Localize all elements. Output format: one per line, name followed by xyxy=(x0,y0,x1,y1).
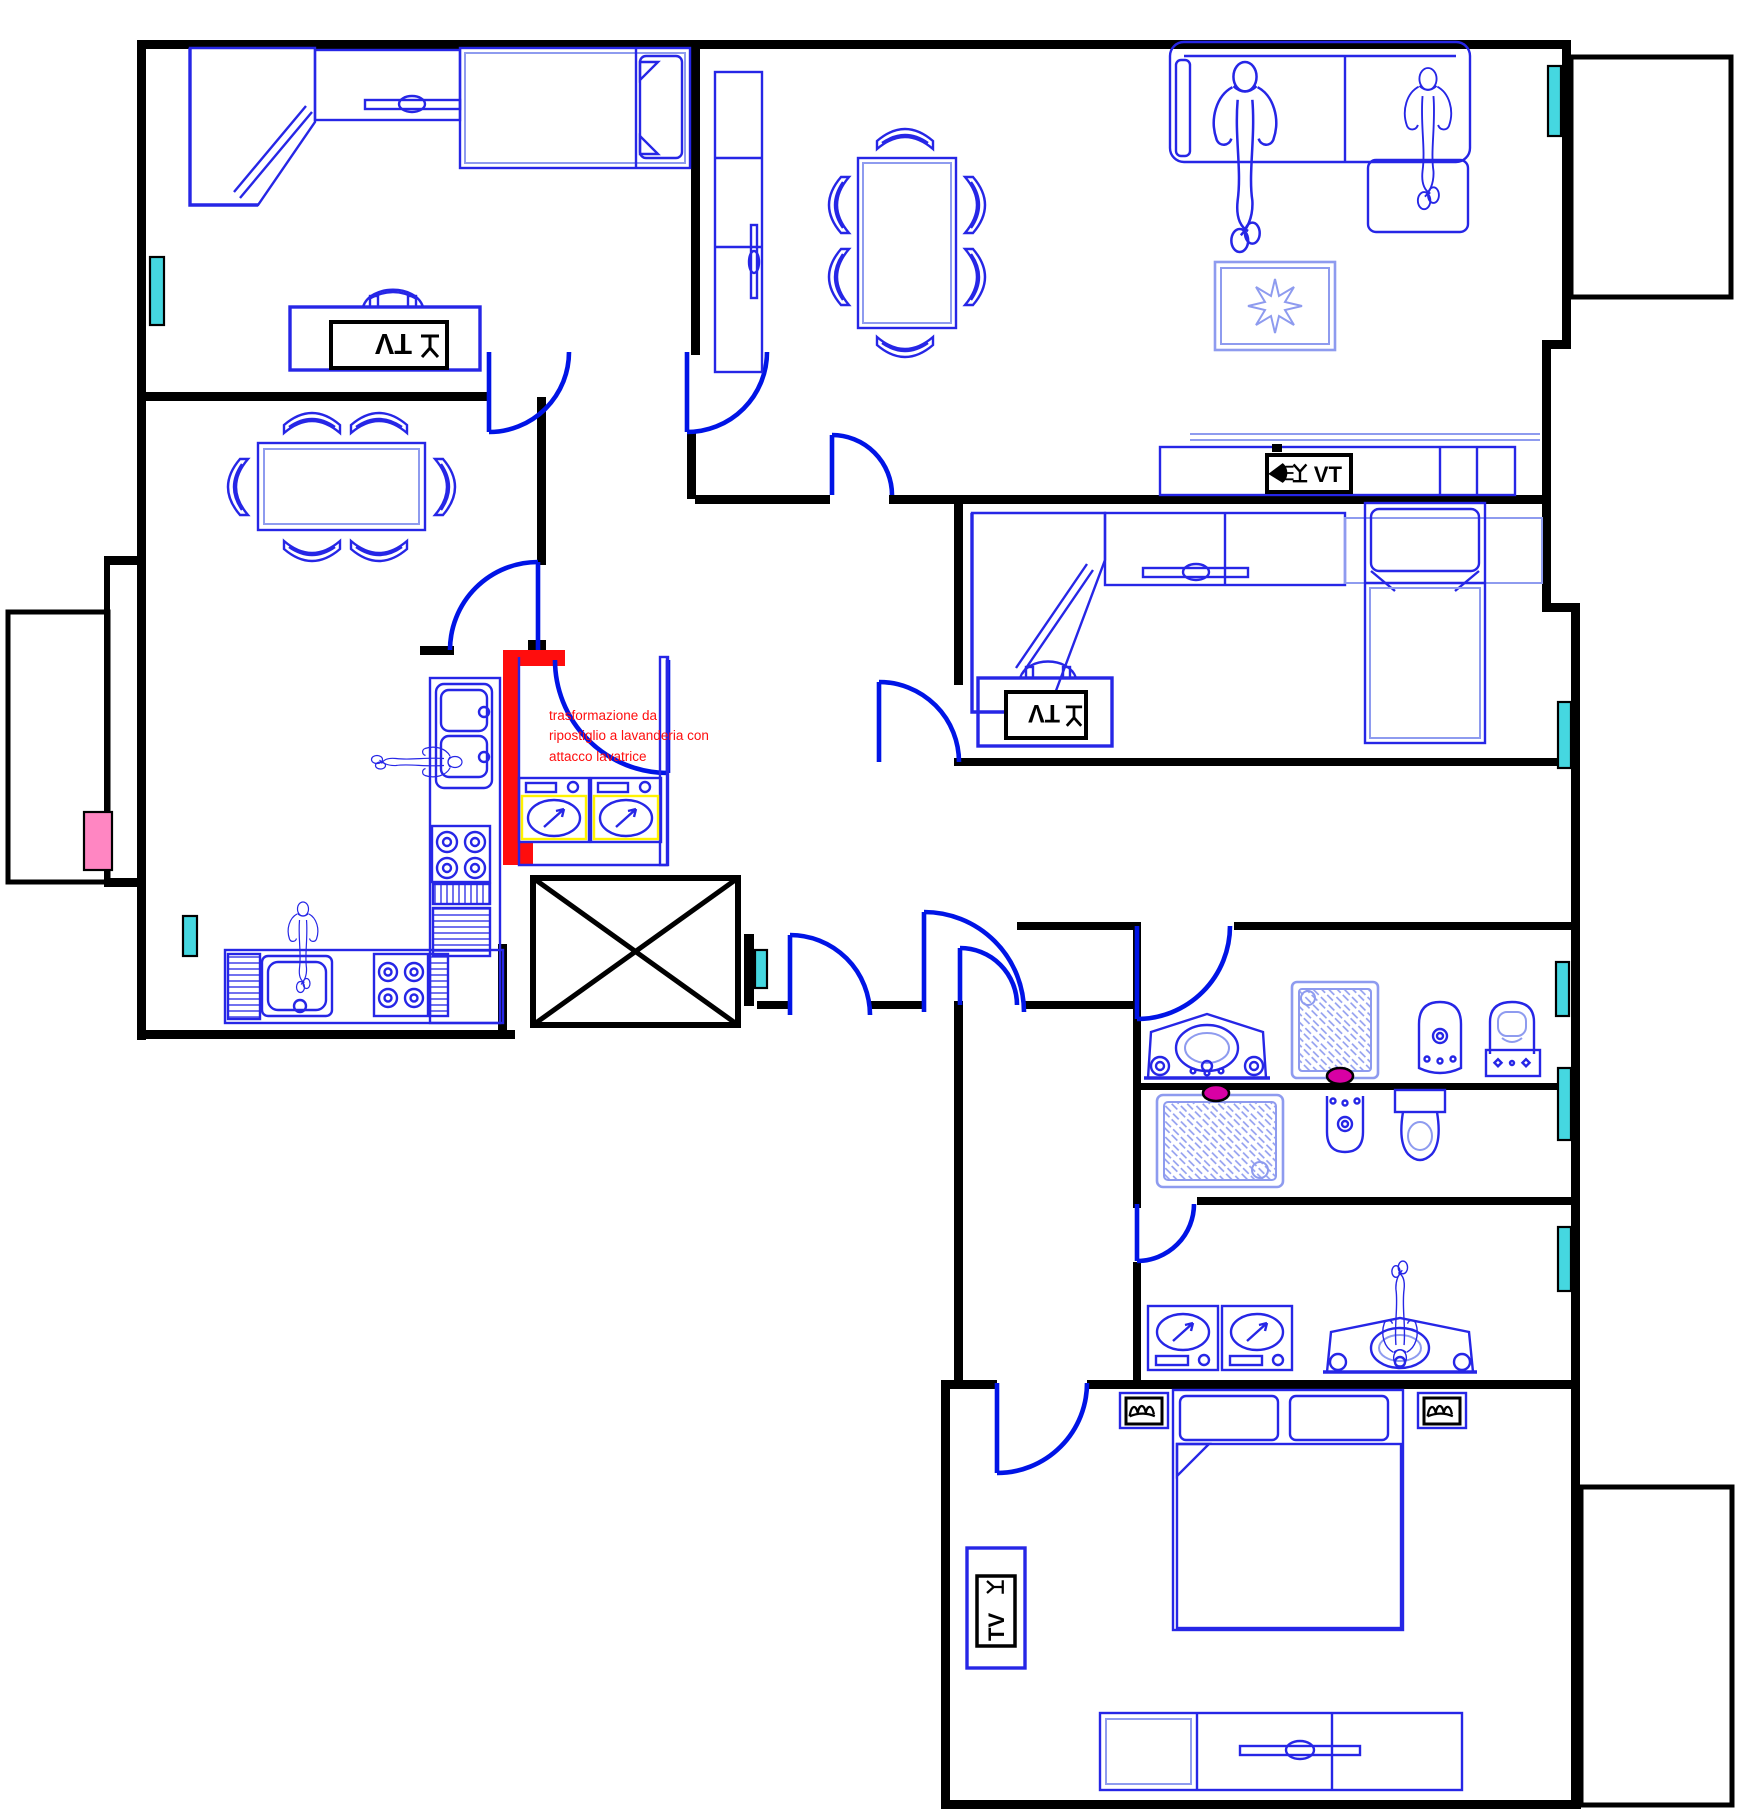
balcony-top-right xyxy=(1571,57,1731,297)
radiator xyxy=(1558,1227,1571,1291)
dining-table xyxy=(858,158,956,328)
shower-tray xyxy=(1292,982,1378,1084)
radiator xyxy=(1548,66,1561,136)
radiators xyxy=(150,66,1571,1291)
double-bed xyxy=(1173,1390,1403,1630)
door-bedroom3 xyxy=(997,1383,1087,1473)
tv-text: TV xyxy=(1314,462,1342,487)
washing-machine xyxy=(591,778,661,842)
tall-cabinet xyxy=(715,72,762,372)
chair xyxy=(877,337,933,357)
bidet xyxy=(1327,1096,1363,1152)
corner-wardrobe xyxy=(190,48,315,205)
wardrobe xyxy=(1105,513,1345,585)
person-at-sink xyxy=(1383,1261,1417,1366)
door-dining-hall xyxy=(450,562,538,650)
washing-machine xyxy=(1148,1306,1218,1370)
chair xyxy=(284,541,340,561)
radiator xyxy=(1556,962,1569,1016)
chair xyxy=(829,177,849,233)
balcony-mat xyxy=(84,812,112,870)
room-dining-left xyxy=(228,413,455,561)
radiator xyxy=(1558,702,1571,768)
tv-text: TV xyxy=(374,327,412,359)
chair xyxy=(284,413,340,433)
washing-machine xyxy=(519,778,589,842)
doors xyxy=(450,352,1230,1473)
bathroom1 xyxy=(1144,982,1540,1084)
door-utility xyxy=(1137,1204,1194,1261)
person-at-sink xyxy=(372,747,463,777)
door-hall-2 xyxy=(924,912,1024,1012)
drain-marker xyxy=(1203,1085,1229,1101)
corner-wardrobe xyxy=(972,513,1105,712)
floor-plan-svg: TV xyxy=(0,0,1738,1817)
tv-label-bedroom2: TV xyxy=(1006,692,1086,738)
door-living-hall xyxy=(832,435,892,495)
tv-text: TV xyxy=(1028,699,1060,727)
chair xyxy=(829,249,849,305)
chair xyxy=(965,249,985,305)
door-bedroom1 xyxy=(489,352,569,432)
tv-text: TV xyxy=(984,1613,1009,1641)
rug xyxy=(1215,262,1335,350)
single-bed xyxy=(1365,503,1485,743)
room-kitchen xyxy=(225,678,503,1023)
room-bedroom3: TV xyxy=(967,1390,1466,1790)
room-bedroom-topleft: TV xyxy=(190,48,690,370)
dining-table xyxy=(258,443,425,530)
radiator xyxy=(755,950,767,988)
bidet xyxy=(1419,1002,1461,1073)
person-on-sofa xyxy=(1405,68,1451,209)
toilet xyxy=(1395,1090,1445,1160)
room-bedroom2: TV xyxy=(972,503,1542,746)
stove xyxy=(432,826,490,882)
person-at-sink xyxy=(288,902,318,993)
kitchen-counter-horizontal xyxy=(225,950,503,1023)
washing-machine xyxy=(1222,1306,1292,1370)
elevator-shaft xyxy=(533,878,738,1025)
chair xyxy=(228,459,248,515)
toilet xyxy=(1486,1002,1540,1076)
vanity-sink xyxy=(1323,1318,1477,1372)
chair xyxy=(965,177,985,233)
chair xyxy=(435,459,455,515)
utility-room xyxy=(1148,1261,1477,1372)
door-living xyxy=(687,352,767,432)
wardrobe xyxy=(1100,1713,1462,1790)
balcony-bottom-right xyxy=(1581,1487,1732,1805)
door-hall-1 xyxy=(790,935,870,1015)
tv-label-bedroom3: TV xyxy=(977,1576,1015,1646)
shower-tray xyxy=(1157,1085,1283,1187)
room-living: TV xyxy=(715,42,1540,495)
vanity-sink xyxy=(1144,1014,1270,1078)
floor-plan: TV xyxy=(0,0,1738,1817)
annotation-text: trasformazione da ripostiglio a lavander… xyxy=(549,706,727,767)
tv-label-bedroom1: TV xyxy=(331,322,447,368)
nightstand-right xyxy=(1418,1393,1466,1428)
chair xyxy=(351,541,407,561)
single-bed xyxy=(460,48,690,168)
person-on-sofa xyxy=(1214,62,1276,252)
drain-marker xyxy=(1327,1068,1353,1084)
bathroom2 xyxy=(1157,1085,1445,1187)
chair xyxy=(351,413,407,433)
door-bedroom2 xyxy=(879,682,959,762)
gas-hob xyxy=(374,954,428,1016)
balconies xyxy=(8,57,1732,1805)
door-bathroom1 xyxy=(1137,926,1230,1019)
chair xyxy=(877,129,933,149)
wardrobe xyxy=(315,50,460,120)
radiator xyxy=(183,916,197,956)
radiator xyxy=(150,257,164,325)
radiator xyxy=(1558,1068,1571,1140)
tv-label-living: TV xyxy=(1267,455,1351,492)
nightstand-left xyxy=(1120,1393,1168,1428)
